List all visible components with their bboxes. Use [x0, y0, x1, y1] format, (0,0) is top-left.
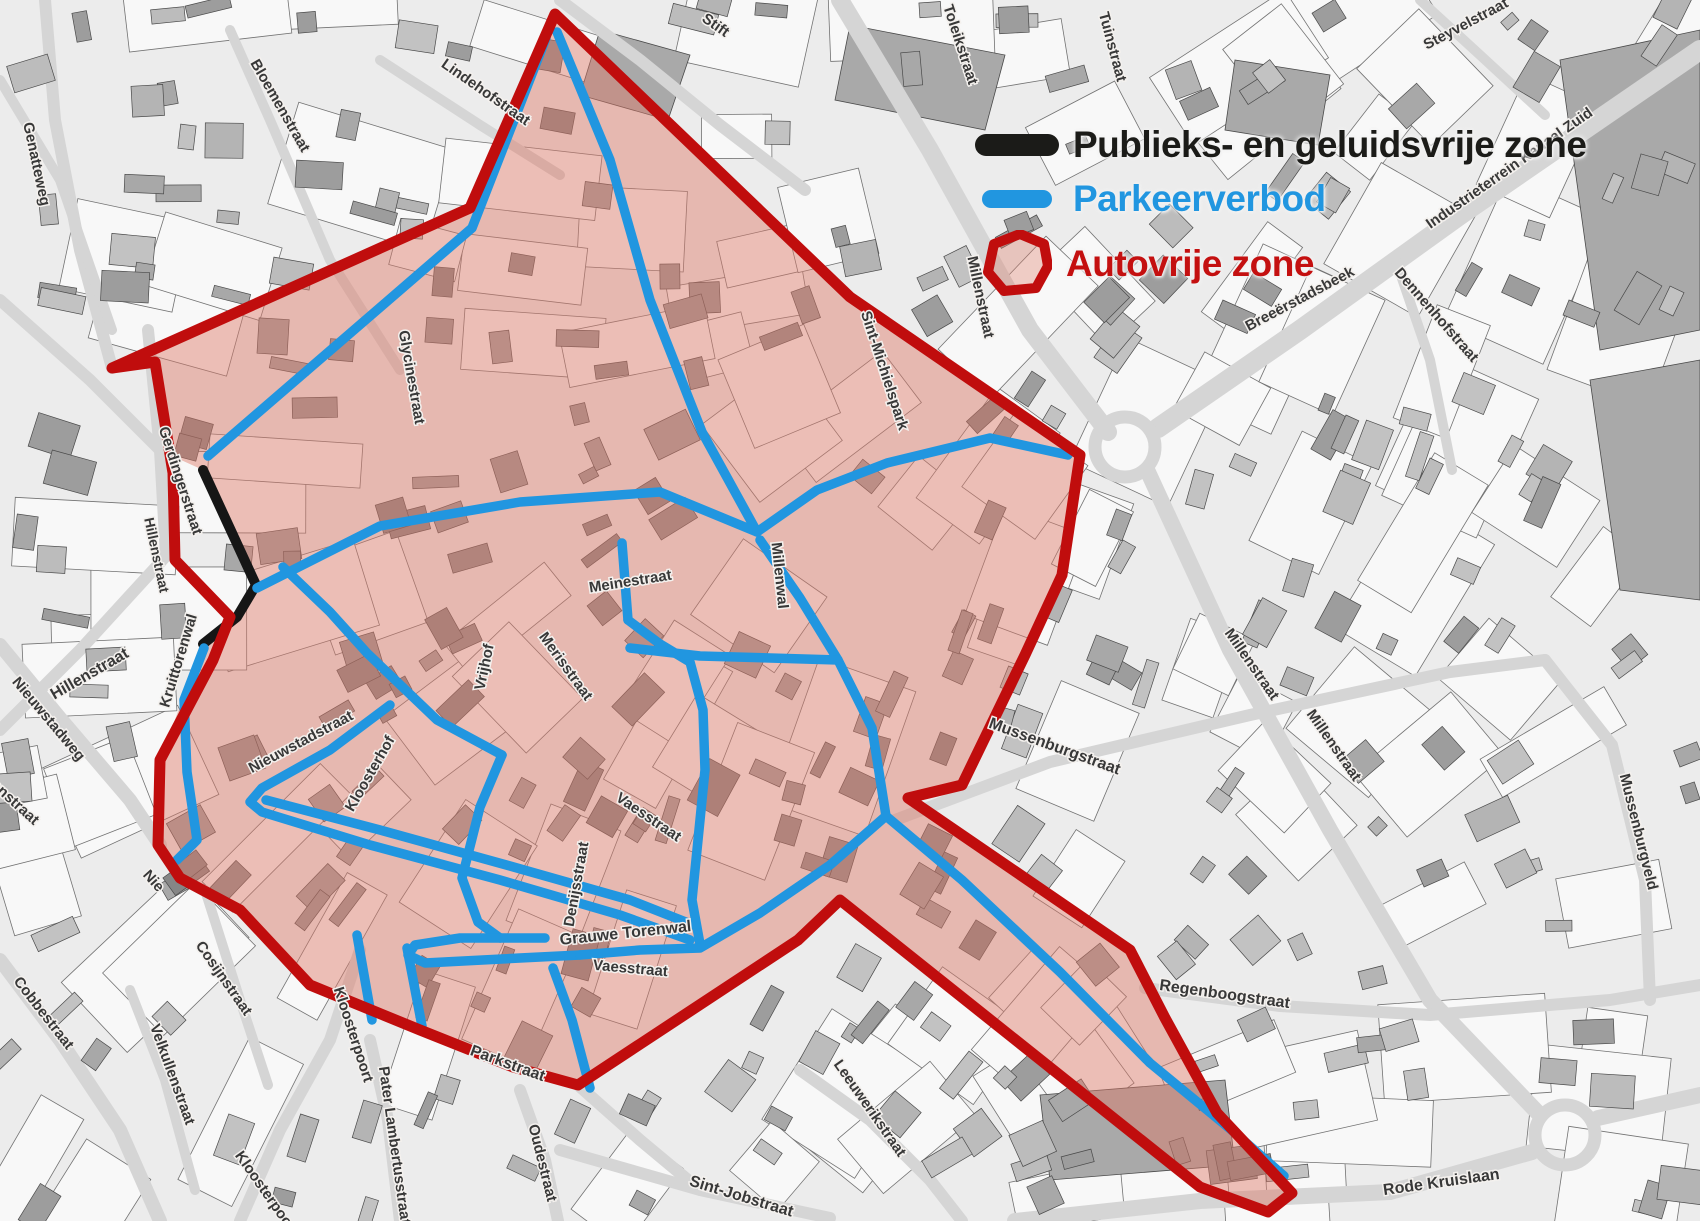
- base-map: GenattewegBloemenstraatLindehofstraatSti…: [0, 0, 1700, 1221]
- building: [1404, 1068, 1429, 1101]
- building: [13, 514, 39, 550]
- building: [1546, 920, 1572, 931]
- map-canvas: GenattewegBloemenstraatLindehofstraatSti…: [0, 0, 1700, 1221]
- building: [151, 7, 186, 25]
- building: [217, 210, 240, 225]
- building: [1539, 1058, 1577, 1086]
- building: [901, 51, 923, 86]
- building: [295, 160, 343, 190]
- building: [131, 85, 165, 118]
- building: [109, 233, 156, 268]
- building: [36, 545, 66, 573]
- building: [919, 2, 941, 18]
- building: [205, 123, 243, 159]
- building: [1657, 1165, 1700, 1205]
- building: [178, 124, 196, 150]
- building: [124, 174, 164, 194]
- building: [1589, 1073, 1635, 1109]
- building: [297, 11, 317, 33]
- building: [765, 121, 790, 145]
- building: [998, 6, 1029, 34]
- building: [1293, 1100, 1319, 1120]
- building: [1573, 1019, 1615, 1045]
- building: [755, 3, 788, 18]
- building: [101, 270, 150, 303]
- building: [395, 20, 438, 54]
